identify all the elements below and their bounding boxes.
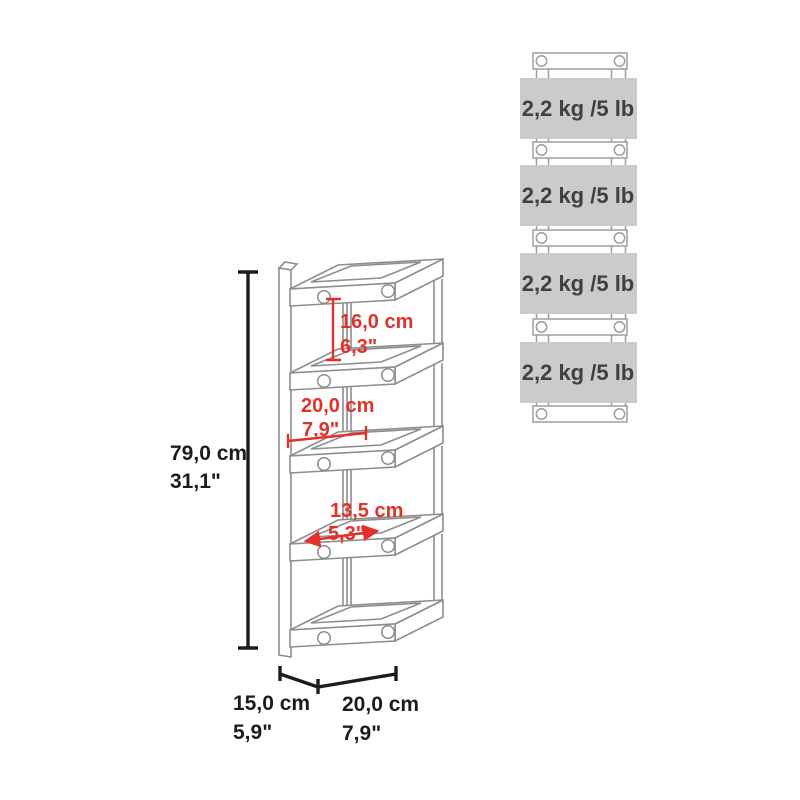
base-depth-cm: 15,0 cm [233, 692, 310, 715]
screw-hole-icon [382, 285, 395, 298]
mounting-rail [533, 142, 627, 158]
compartment-height-cm: 16,0 cm [340, 311, 413, 333]
inner-width-cm: 20,0 cm [301, 395, 374, 417]
mounting-rail [533, 319, 627, 335]
overall-height-cm: 79,0 cm [170, 442, 247, 465]
weight-capacity-diagram: 2,2 kg /5 lb 2,2 kg /5 lb 2,2 kg /5 lb 2… [520, 53, 637, 422]
weight-label: 2,2 kg /5 lb [522, 360, 635, 385]
base-depth-in: 5,9" [233, 721, 272, 744]
compartment-height-in: 6,3" [340, 336, 377, 358]
screw-hole-icon [536, 145, 546, 155]
screw-hole-icon [382, 369, 395, 382]
screw-hole-icon [614, 56, 624, 66]
screw-hole-icon [318, 458, 331, 471]
weight-label: 2,2 kg /5 lb [522, 271, 635, 296]
screw-hole-icon [614, 409, 624, 419]
base-dimensions: 15,0 cm 5,9" 20,0 cm 7,9" [233, 666, 419, 745]
inner-depth-cm: 13,5 cm [330, 500, 403, 522]
screw-hole-icon [318, 632, 331, 645]
screw-hole-icon [318, 291, 331, 304]
screw-hole-icon [318, 546, 331, 559]
base-width-in: 7,9" [342, 722, 381, 745]
screw-hole-icon [614, 233, 624, 243]
screw-hole-icon [536, 233, 546, 243]
shelf-frame [290, 600, 443, 647]
base-width-cm: 20,0 cm [342, 693, 419, 716]
diagram-canvas: 79,0 cm 31,1" 15,0 cm 5,9" 20,0 cm 7,9" … [0, 0, 800, 800]
screw-hole-icon [536, 409, 546, 419]
weight-label: 2,2 kg /5 lb [522, 96, 635, 121]
screw-hole-icon [614, 322, 624, 332]
screw-hole-icon [382, 452, 395, 465]
mounting-rail [533, 53, 627, 69]
screw-hole-icon [382, 540, 395, 553]
screw-hole-icon [382, 626, 395, 639]
overall-height-dimension: 79,0 cm 31,1" [170, 272, 258, 648]
product-dimension-diagram: 79,0 cm 31,1" 15,0 cm 5,9" 20,0 cm 7,9" … [0, 0, 800, 800]
screw-hole-icon [318, 375, 331, 388]
overall-height-in: 31,1" [170, 470, 221, 493]
screw-hole-icon [536, 56, 546, 66]
shelf-frame [290, 259, 443, 306]
screw-hole-icon [614, 145, 624, 155]
screw-hole-icon [536, 322, 546, 332]
weight-label: 2,2 kg /5 lb [522, 183, 635, 208]
mounting-rail [533, 230, 627, 246]
mounting-rail [533, 406, 627, 422]
